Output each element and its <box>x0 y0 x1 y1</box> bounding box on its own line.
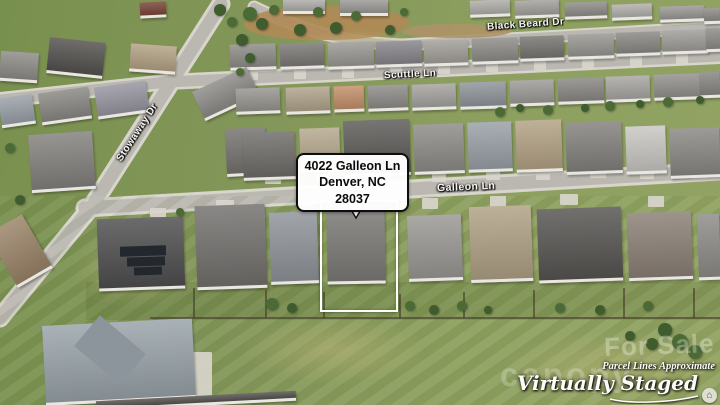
tree <box>516 104 524 112</box>
driveway <box>560 194 578 205</box>
house <box>407 214 463 282</box>
house <box>0 214 53 288</box>
house <box>28 131 96 193</box>
house <box>606 75 651 103</box>
house <box>660 5 705 23</box>
mls-logo-icon: ⌂ <box>702 388 717 403</box>
fence-line <box>399 294 401 318</box>
tree <box>294 24 306 36</box>
tree <box>269 5 279 15</box>
fence-line <box>193 288 195 318</box>
house <box>700 72 720 99</box>
roof-detail <box>134 267 162 276</box>
house <box>376 40 423 68</box>
house <box>558 77 605 105</box>
tree <box>214 4 226 16</box>
tree <box>605 101 615 111</box>
tree <box>543 105 553 115</box>
driveway <box>150 208 166 217</box>
tree <box>555 303 565 313</box>
house <box>236 87 281 115</box>
house <box>269 211 319 285</box>
house <box>412 83 457 111</box>
tree <box>313 7 323 17</box>
house <box>38 87 92 126</box>
house <box>510 79 555 107</box>
tree <box>400 8 408 16</box>
street-label-galleon-ln: Galleon Ln <box>437 180 496 195</box>
house <box>195 204 268 290</box>
house <box>140 1 167 18</box>
house <box>565 121 623 175</box>
tree <box>287 303 297 313</box>
tree <box>5 143 15 153</box>
driveway <box>422 198 438 209</box>
house <box>368 84 409 111</box>
tree <box>266 298 278 310</box>
tree <box>330 22 342 34</box>
house <box>515 119 563 173</box>
tree <box>595 305 605 315</box>
tree <box>663 97 673 107</box>
house <box>340 0 388 16</box>
house <box>460 81 507 110</box>
house <box>515 0 560 19</box>
address-line1: 4022 Galleon Ln <box>302 158 403 174</box>
fence-line <box>150 317 720 319</box>
house <box>706 28 720 52</box>
house <box>470 0 511 18</box>
house <box>627 211 693 281</box>
house <box>520 35 565 62</box>
house <box>662 29 709 55</box>
tree <box>236 34 248 46</box>
aerial-photo: Black Beard Dr Scuttle Ln Galleon Ln Sto… <box>0 0 720 405</box>
house <box>612 3 653 20</box>
tree <box>15 195 25 205</box>
tree <box>245 53 255 63</box>
address-callout: 4022 Galleon Ln Denver, NC 28037 <box>296 153 409 212</box>
fence-line <box>693 288 695 318</box>
tree <box>581 104 589 112</box>
roof-detail <box>127 256 165 266</box>
house <box>625 125 667 174</box>
house <box>334 85 365 112</box>
address-line2: Denver, NC 28037 <box>302 174 403 207</box>
tree <box>636 100 644 108</box>
house <box>0 51 39 84</box>
tree <box>236 68 244 76</box>
house <box>280 42 325 70</box>
house <box>654 73 701 101</box>
house <box>242 131 296 181</box>
house <box>0 94 36 128</box>
worn-grass-patch <box>240 315 430 385</box>
house <box>472 37 519 65</box>
house <box>568 33 615 60</box>
tree <box>227 17 237 27</box>
house <box>46 37 105 79</box>
tree <box>351 11 361 21</box>
house <box>467 121 513 173</box>
house <box>413 123 465 175</box>
fence-line <box>533 290 535 318</box>
tree <box>385 25 395 35</box>
house <box>328 41 375 70</box>
house <box>537 207 624 284</box>
tree <box>429 305 439 315</box>
fence-line <box>623 288 625 318</box>
roof-detail <box>120 245 166 257</box>
tree <box>495 107 505 117</box>
house <box>424 39 469 67</box>
tree <box>256 18 268 30</box>
tree <box>643 301 653 311</box>
house <box>129 43 177 74</box>
driveway <box>648 196 664 207</box>
tree <box>176 208 184 216</box>
house <box>669 127 720 179</box>
tree <box>405 301 415 311</box>
house <box>565 1 608 19</box>
house <box>616 31 661 57</box>
tree <box>243 7 257 21</box>
house <box>704 8 720 25</box>
flourish-underline <box>608 394 700 404</box>
virtually-staged-note: Virtually Staged <box>517 371 698 395</box>
tree <box>696 96 704 104</box>
house <box>286 86 331 115</box>
house <box>469 205 534 283</box>
tree <box>457 301 467 311</box>
house <box>697 214 720 281</box>
tree <box>484 306 492 314</box>
